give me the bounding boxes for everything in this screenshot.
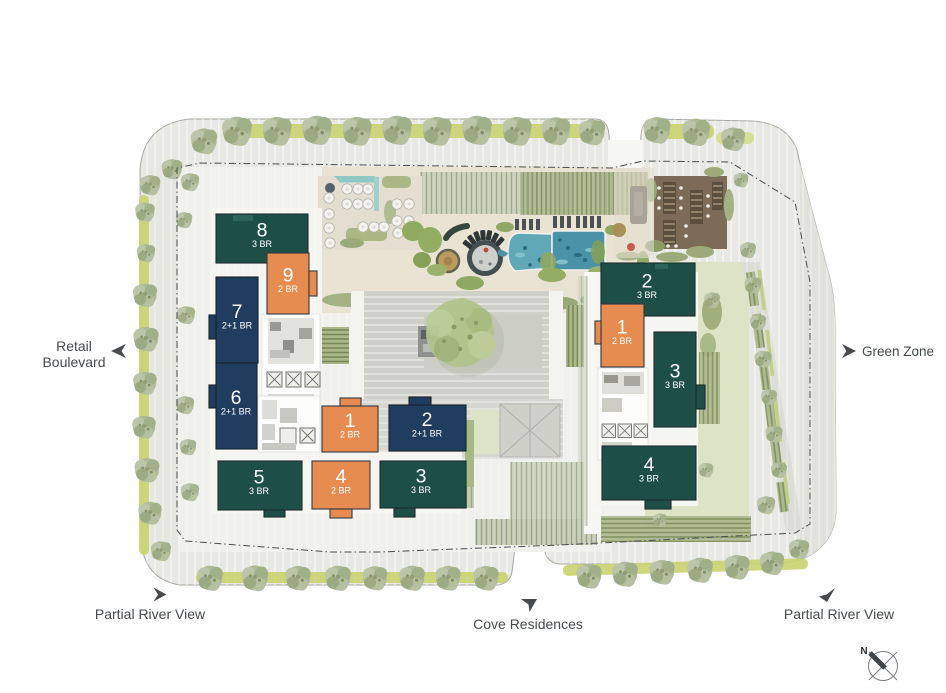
svg-text:3 BR: 3 BR (252, 239, 273, 249)
svg-text:3 BR: 3 BR (411, 485, 432, 495)
svg-text:2 BR: 2 BR (278, 284, 299, 294)
svg-text:Green Zone: Green Zone (862, 344, 934, 359)
svg-text:Cove Residences: Cove Residences (473, 616, 583, 632)
svg-text:Partial River View: Partial River View (95, 606, 206, 622)
svg-text:2+1 BR: 2+1 BR (222, 321, 253, 331)
svg-text:Partial River View: Partial River View (784, 606, 895, 622)
svg-text:2 BR: 2 BR (331, 486, 352, 496)
svg-text:2+1 BR: 2+1 BR (412, 429, 443, 439)
svg-text:3 BR: 3 BR (249, 486, 270, 496)
svg-text:Boulevard: Boulevard (42, 354, 105, 370)
svg-text:3 BR: 3 BR (637, 290, 658, 300)
svg-text:Retail: Retail (56, 338, 92, 354)
svg-text:3 BR: 3 BR (639, 474, 660, 484)
svg-text:3 BR: 3 BR (665, 380, 686, 390)
svg-text:2 BR: 2 BR (612, 336, 633, 346)
svg-text:N: N (860, 646, 867, 657)
svg-text:2+1 BR: 2+1 BR (221, 407, 252, 417)
svg-text:2 BR: 2 BR (340, 430, 361, 440)
